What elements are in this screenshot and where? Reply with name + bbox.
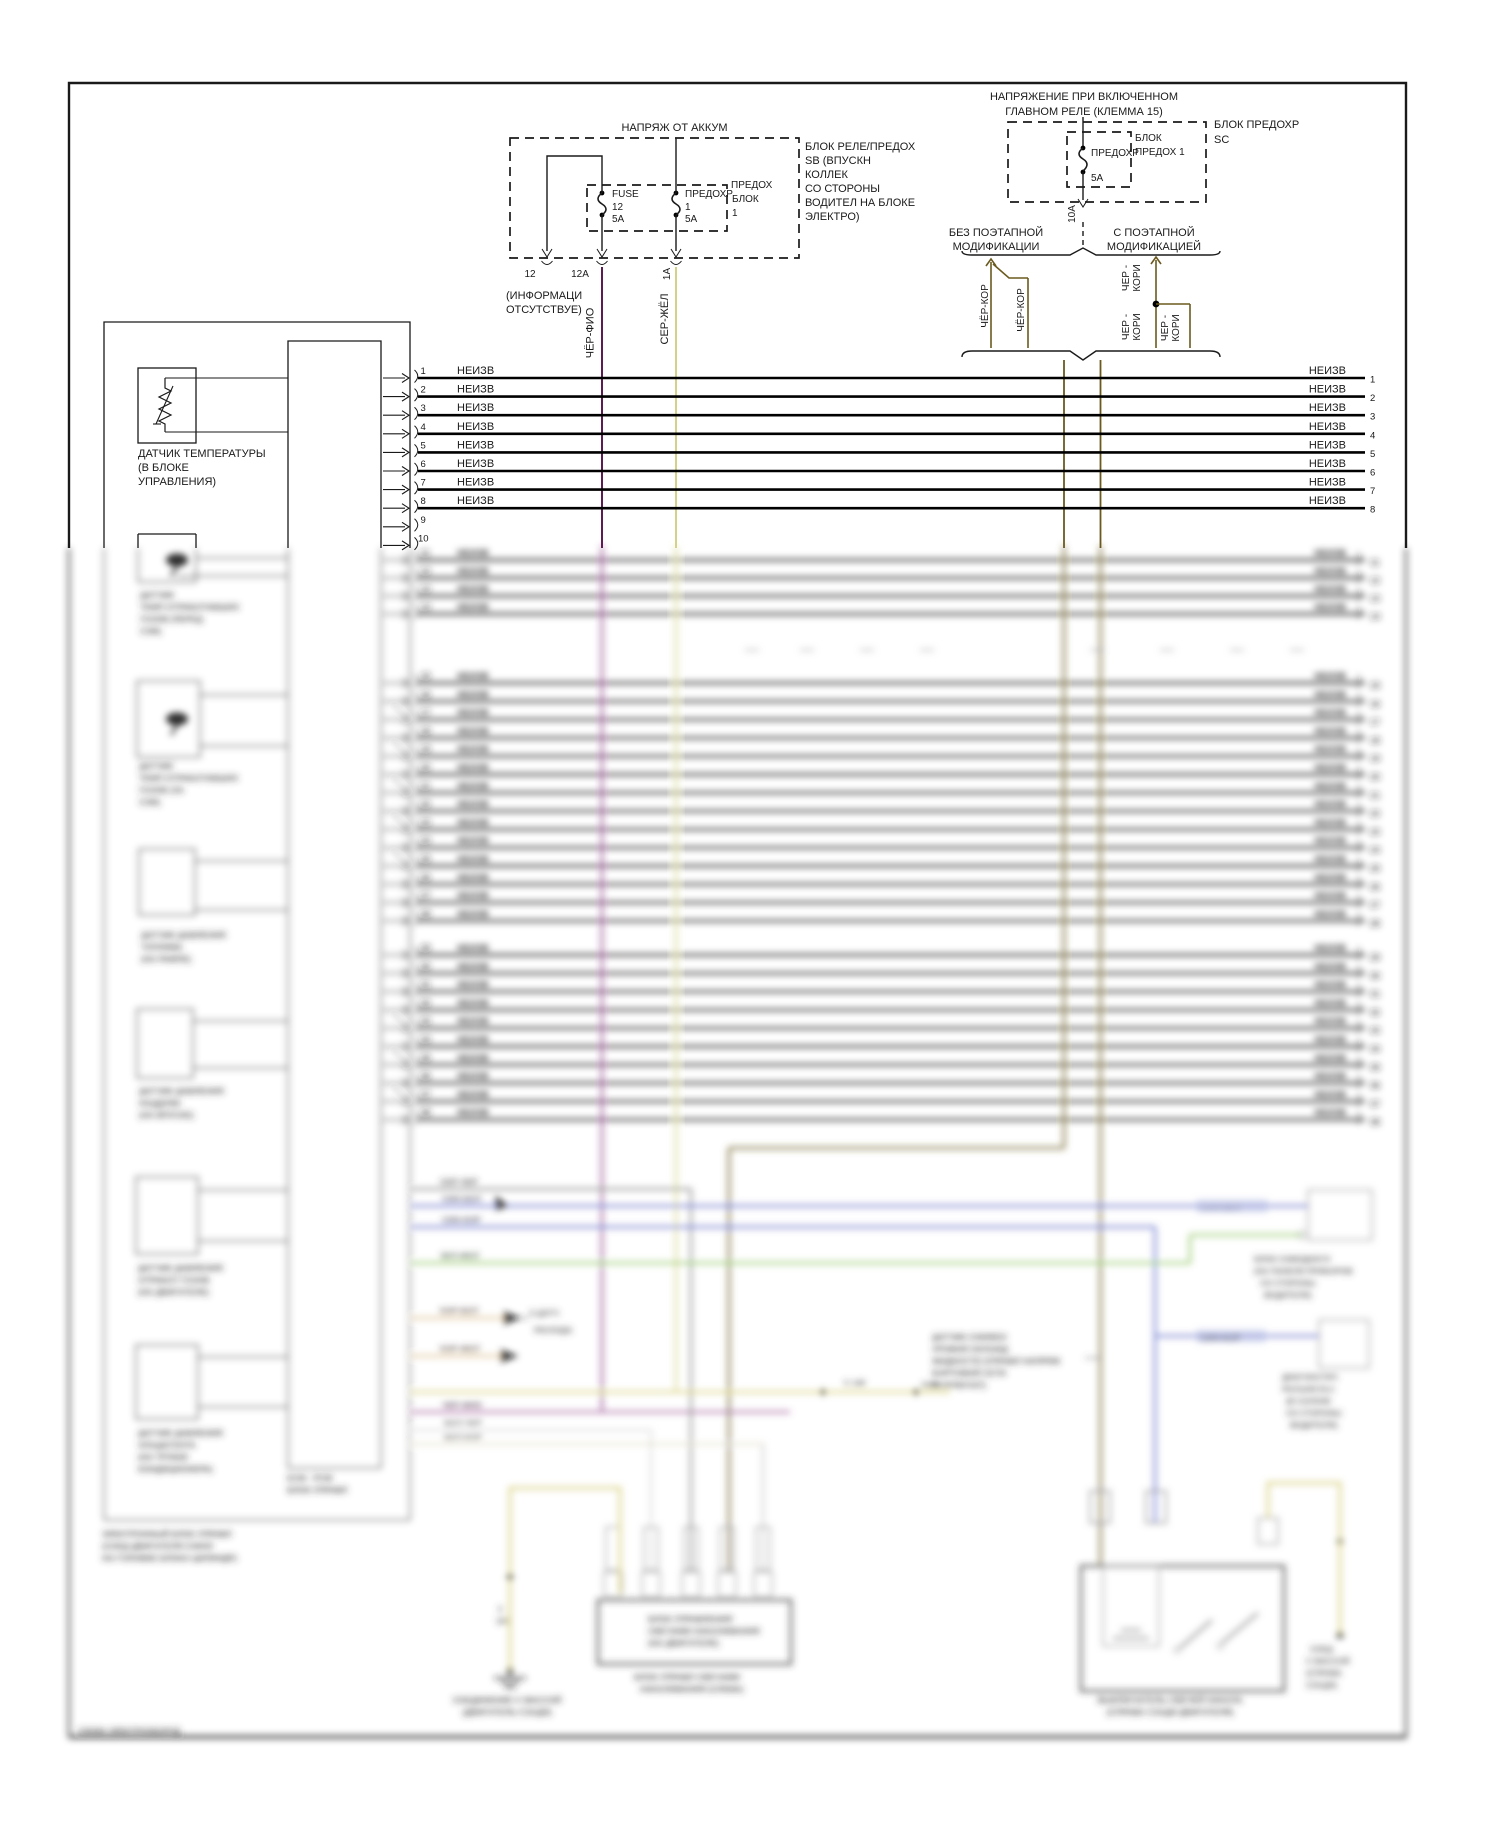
svg-text:(В БЛОКЕ: (В БЛОКЕ bbox=[138, 462, 189, 474]
svg-text:1: 1 bbox=[421, 366, 426, 377]
svg-text:ЧЁР-КОР: ЧЁР-КОР bbox=[1015, 288, 1027, 332]
svg-text:5A: 5A bbox=[612, 214, 625, 225]
svg-text:8: 8 bbox=[1370, 505, 1375, 516]
svg-text:НЕИЗВ: НЕИЗВ bbox=[457, 477, 494, 489]
svg-text:С ПОЭТАПНОЙ: С ПОЭТАПНОЙ bbox=[1113, 226, 1194, 239]
svg-text:3: 3 bbox=[1370, 412, 1375, 423]
svg-text:КОРИ: КОРИ bbox=[1171, 314, 1182, 341]
svg-text:1: 1 bbox=[685, 202, 691, 213]
svg-text:БЕЗ ПОЭТАПНОЙ: БЕЗ ПОЭТАПНОЙ bbox=[949, 226, 1043, 239]
svg-text:6: 6 bbox=[1370, 468, 1375, 479]
svg-text:ЧЁР-ФИО: ЧЁР-ФИО bbox=[585, 307, 597, 358]
svg-text:МОДИФИКАЦИИ: МОДИФИКАЦИИ bbox=[953, 241, 1040, 253]
svg-text:НЕИЗВ: НЕИЗВ bbox=[457, 384, 494, 396]
svg-text:НЕИЗВ: НЕИЗВ bbox=[457, 439, 494, 451]
svg-text:4: 4 bbox=[421, 422, 426, 433]
svg-text:НЕИЗВ: НЕИЗВ bbox=[1309, 477, 1346, 489]
svg-text:УПРАВЛЕНИЯ): УПРАВЛЕНИЯ) bbox=[138, 476, 216, 488]
svg-text:1А: 1А bbox=[662, 268, 673, 281]
svg-text:КОРИ: КОРИ bbox=[1132, 313, 1143, 340]
svg-text:НЕИЗВ: НЕИЗВ bbox=[457, 402, 494, 414]
svg-text:10А: 10А bbox=[1067, 205, 1078, 223]
svg-text:12: 12 bbox=[612, 202, 624, 213]
svg-text:ПРЕДОХР: ПРЕДОХР bbox=[1091, 148, 1139, 159]
svg-text:НЕИЗВ: НЕИЗВ bbox=[457, 421, 494, 433]
svg-text:5А: 5А bbox=[685, 214, 698, 225]
svg-text:НЕИЗВ: НЕИЗВ bbox=[457, 365, 494, 377]
svg-text:2: 2 bbox=[421, 385, 426, 396]
svg-text:НЕИЗВ: НЕИЗВ bbox=[1309, 439, 1346, 451]
svg-text:ЧЕР -: ЧЕР - bbox=[1160, 315, 1171, 341]
svg-text:НАПРЯЖЕНИЕ ПРИ ВКЛЮЧЕННОМ: НАПРЯЖЕНИЕ ПРИ ВКЛЮЧЕННОМ bbox=[990, 91, 1178, 103]
svg-text:БЛОК ПРЕДОХР: БЛОК ПРЕДОХР bbox=[1214, 119, 1299, 131]
svg-text:НЕИЗВ: НЕИЗВ bbox=[457, 458, 494, 470]
svg-text:НЕИЗВ: НЕИЗВ bbox=[1309, 402, 1346, 414]
svg-text:ГЛАВНОМ РЕЛЕ (КЛЕММА 15): ГЛАВНОМ РЕЛЕ (КЛЕММА 15) bbox=[1005, 106, 1162, 118]
svg-text:SB (ВПУСКН: SB (ВПУСКН bbox=[805, 155, 871, 167]
svg-text:БЛОК РЕЛЕ/ПРЕДОХ: БЛОК РЕЛЕ/ПРЕДОХ bbox=[805, 141, 916, 153]
svg-text:3: 3 bbox=[421, 403, 426, 414]
svg-text:ПРЕДОХ 1: ПРЕДОХ 1 bbox=[1135, 147, 1185, 158]
svg-text:7: 7 bbox=[421, 478, 426, 489]
svg-text:ЧЕР -: ЧЕР - bbox=[1121, 265, 1132, 291]
svg-text:5А: 5А bbox=[1091, 173, 1104, 184]
svg-text:4: 4 bbox=[1370, 430, 1375, 441]
svg-text:FUSE: FUSE bbox=[612, 189, 639, 200]
svg-text:ЧЕР -: ЧЕР - bbox=[1121, 314, 1132, 340]
svg-text:НЕИЗВ: НЕИЗВ bbox=[457, 495, 494, 507]
svg-text:5: 5 bbox=[1370, 449, 1375, 460]
svg-text:НЕИЗВ: НЕИЗВ bbox=[1309, 458, 1346, 470]
svg-text:12А: 12А bbox=[571, 269, 589, 280]
svg-text:1: 1 bbox=[1370, 375, 1375, 386]
svg-text:НЕИЗВ: НЕИЗВ bbox=[1309, 495, 1346, 507]
svg-text:МОДИФИКАЦИЕЙ: МОДИФИКАЦИЕЙ bbox=[1107, 240, 1201, 253]
svg-text:8: 8 bbox=[421, 496, 426, 507]
svg-text:1: 1 bbox=[732, 208, 738, 219]
svg-text:ДАТЧИК ТЕМПЕРАТУРЫ: ДАТЧИК ТЕМПЕРАТУРЫ bbox=[138, 448, 266, 460]
svg-text:ПРЕДОХ: ПРЕДОХ bbox=[731, 180, 773, 191]
svg-text:6: 6 bbox=[421, 459, 426, 470]
svg-text:СО СТОРОНЫ: СО СТОРОНЫ bbox=[805, 183, 880, 195]
svg-text:(ИНФОРМАЦИ: (ИНФОРМАЦИ bbox=[506, 290, 582, 302]
svg-text:ЧЁР-КОР: ЧЁР-КОР bbox=[979, 284, 991, 328]
svg-text:КОРИ: КОРИ bbox=[1132, 264, 1143, 291]
svg-text:БЛОК: БЛОК bbox=[1135, 133, 1162, 144]
svg-text:2: 2 bbox=[1370, 393, 1375, 404]
svg-text:СЕР-ЖЁЛ: СЕР-ЖЁЛ bbox=[659, 294, 671, 345]
svg-text:КОЛЛЕК: КОЛЛЕК bbox=[805, 169, 848, 181]
svg-text:НЕИЗВ: НЕИЗВ bbox=[1309, 421, 1346, 433]
svg-text:9: 9 bbox=[421, 515, 426, 526]
svg-text:SC: SC bbox=[1214, 134, 1229, 146]
svg-text:БЛОК: БЛОК bbox=[732, 194, 759, 205]
svg-text:5: 5 bbox=[421, 440, 426, 451]
svg-text:7: 7 bbox=[1370, 486, 1375, 497]
svg-text:ЭЛЕКТРО): ЭЛЕКТРО) bbox=[805, 211, 860, 223]
svg-text:ОТСУТСТВУЕ): ОТСУТСТВУЕ) bbox=[506, 304, 582, 316]
svg-text:ВОДИТЕЛ НА БЛОКЕ: ВОДИТЕЛ НА БЛОКЕ bbox=[805, 197, 915, 209]
svg-text:10: 10 bbox=[418, 533, 429, 544]
svg-text:НАПРЯЖ ОТ АККУМ: НАПРЯЖ ОТ АККУМ bbox=[621, 122, 727, 134]
svg-text:НЕИЗВ: НЕИЗВ bbox=[1309, 384, 1346, 396]
svg-text:НЕИЗВ: НЕИЗВ bbox=[1309, 365, 1346, 377]
svg-text:ПРЕДОХР: ПРЕДОХР bbox=[685, 189, 733, 200]
svg-text:12: 12 bbox=[524, 269, 536, 280]
